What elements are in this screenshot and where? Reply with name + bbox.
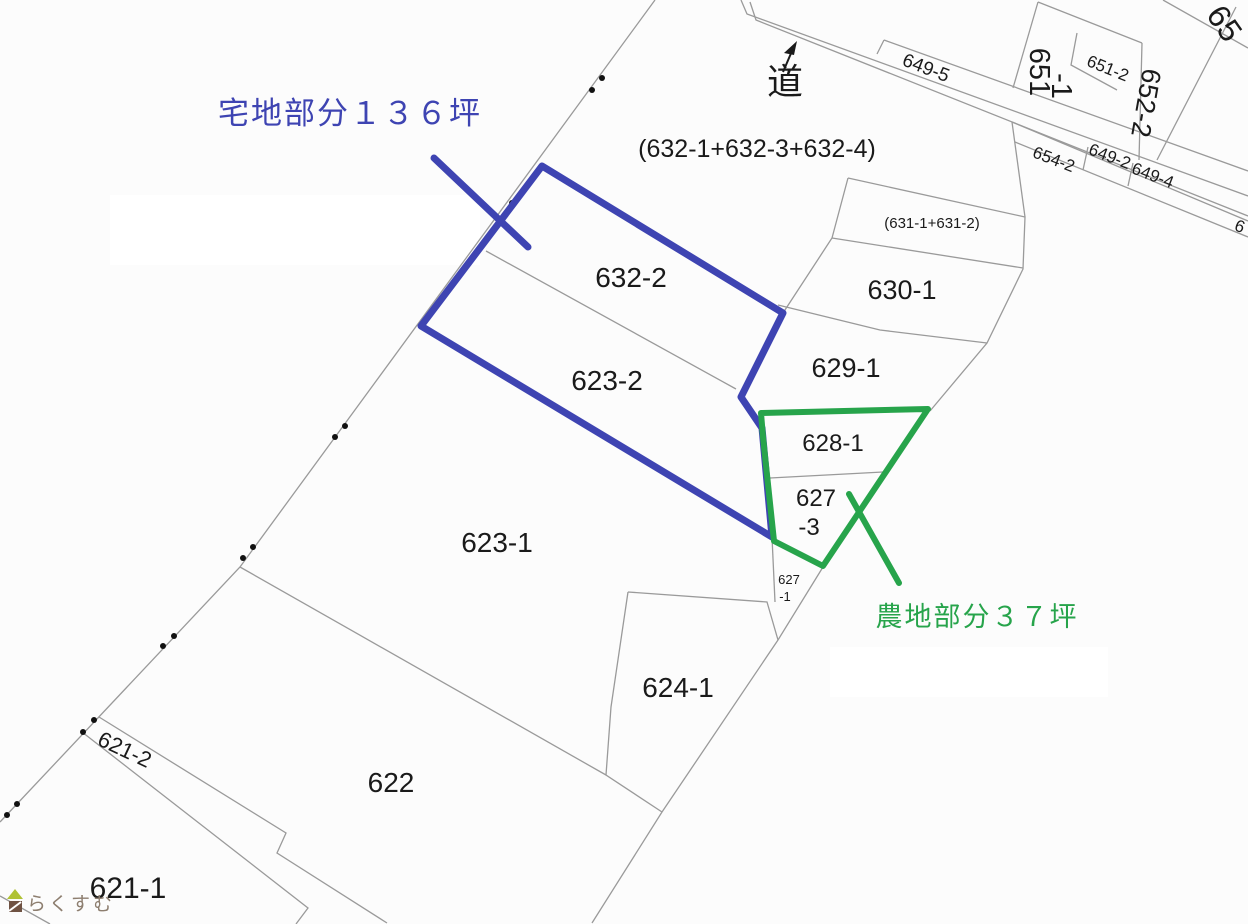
boundary-point-dots [4, 75, 605, 818]
road-upper-line [741, 0, 1248, 196]
parcel-label-622: 622 [368, 767, 415, 798]
parcel-label-649-2: 649-2 [1086, 140, 1133, 173]
long-diagonal-boundary [592, 567, 823, 923]
parcel-label-623-2: 623-2 [571, 365, 643, 396]
parcel-label-654-2: 654-2 [1030, 143, 1077, 176]
cadastral-map: 宅地部分１３６坪 道 (632-1+632-3+632-4) 649-5 651… [0, 0, 1248, 924]
annotation-farmland-label: 農地部分３７坪 [876, 602, 1079, 632]
parcel-boundary-lines [0, 0, 1248, 924]
parcel-label-651-2: 651-2 [1084, 52, 1131, 86]
annotation-residential-label: 宅地部分１３６坪 [218, 96, 482, 131]
parcel-label-624-1: 624-1 [642, 672, 714, 703]
farmland-leader-line [849, 494, 899, 583]
parcel-label-627-3-line2: -3 [798, 514, 819, 541]
parcel-label-627-1-line1: 627 [778, 572, 800, 587]
road-lower-line [750, 2, 1248, 216]
parcel-label-65x-partial: 65 [1200, 0, 1248, 48]
parcel-label-627-1-line2: -1 [779, 589, 791, 604]
parcel-label-628-1: 628-1 [802, 430, 863, 457]
parcel-label-631-1-631-2: (631-1+631-2) [884, 215, 979, 232]
parcel-label-629-1: 629-1 [811, 353, 880, 383]
parcel-label-623-1: 623-1 [461, 527, 533, 558]
parcel-label-627-3-line1: 627 [796, 485, 836, 512]
parcel-631-top-edge [848, 178, 1025, 217]
parcel-label-630-1: 630-1 [867, 275, 936, 305]
parcel-label-649-4: 649-4 [1129, 159, 1176, 192]
parcel-631-630-divider [832, 238, 1023, 268]
watermark-logo-roof-icon [7, 889, 23, 899]
label-cover-patch-left [110, 195, 480, 265]
label-cover-patch-right [830, 647, 1108, 697]
watermark-brand-text: らくすむ [27, 894, 115, 915]
road-label: 道 [767, 61, 803, 102]
parcel-627-1-left-edge [772, 537, 775, 602]
parcel-label-6xx-partial: 6 [1232, 216, 1248, 237]
map-canvas: 宅地部分１３６坪 道 (632-1+632-3+632-4) 649-5 651… [0, 0, 1248, 924]
parcel-label-652-2: 652-2 [1125, 66, 1167, 139]
parcel-651-top-edge [1038, 2, 1142, 43]
parcel-label-632-2: 632-2 [595, 262, 667, 293]
parcel-631-left-edge [783, 178, 848, 313]
parcel-labels: 宅地部分１３６坪 道 (632-1+632-3+632-4) 649-5 651… [90, 0, 1248, 905]
parcel-628-627-divider [770, 472, 883, 478]
parcel-630-629-divider [778, 305, 987, 343]
parcel-label-632-1-632-3-632-4: (632-1+632-3+632-4) [638, 135, 876, 163]
parcel-622-623-divider [240, 567, 606, 775]
parcel-label-651-1-line2: -1 [1045, 73, 1077, 99]
